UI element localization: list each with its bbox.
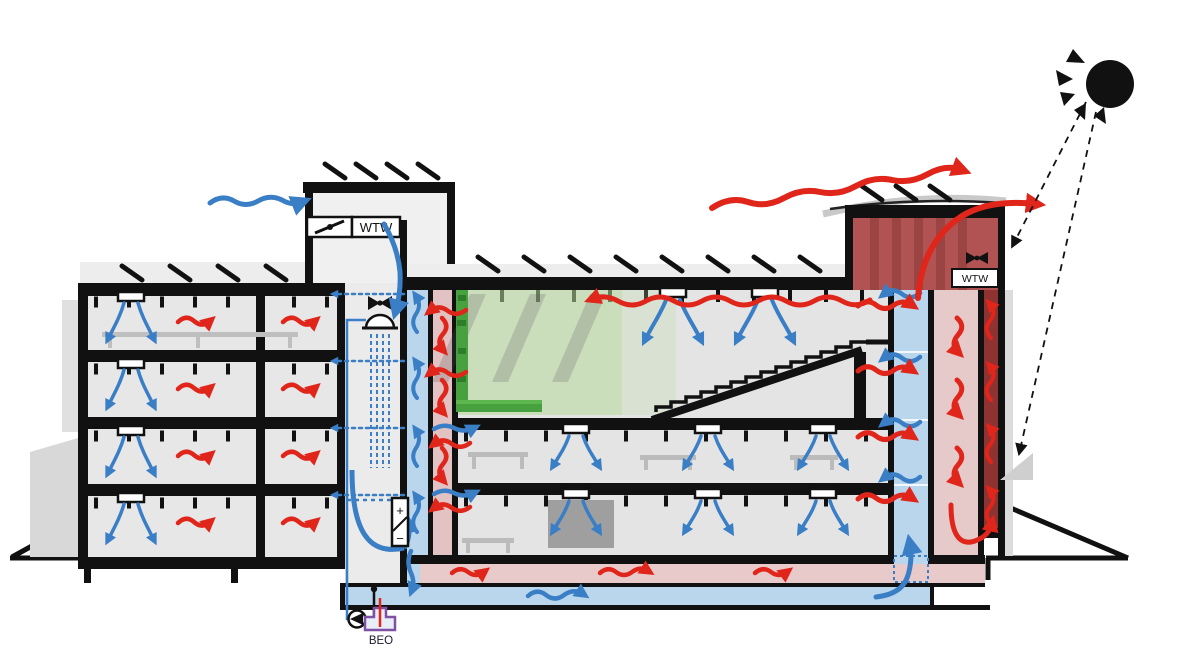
building-section-diagram: WTW [0,0,1200,649]
hx-plus-label: + [396,503,404,518]
wtw-unit-right: WTW [952,269,998,287]
sun-rays-dashed [1014,102,1096,450]
fresh-air-intake-arrow [210,197,302,204]
beo-label: BEO [369,635,393,647]
floor-heating-band [420,564,985,583]
wtw-right-label: WTW [962,273,988,285]
exhaust-cavity-central [433,283,452,562]
left-annex-silhouette [30,300,78,557]
wtw-unit-left: WTW [352,217,400,237]
solar-chimney-tower: WTW [823,198,1006,290]
solar-panel-marks-tower [325,164,438,178]
heat-exchanger-plus-minus: + − [392,498,408,546]
warm-cavity-right [934,290,978,556]
hx-minus-label: − [396,531,404,546]
left-building [78,262,345,583]
ground-duct [340,583,990,610]
section-drawing: WTW [0,0,1200,649]
damper-icon [307,217,352,237]
